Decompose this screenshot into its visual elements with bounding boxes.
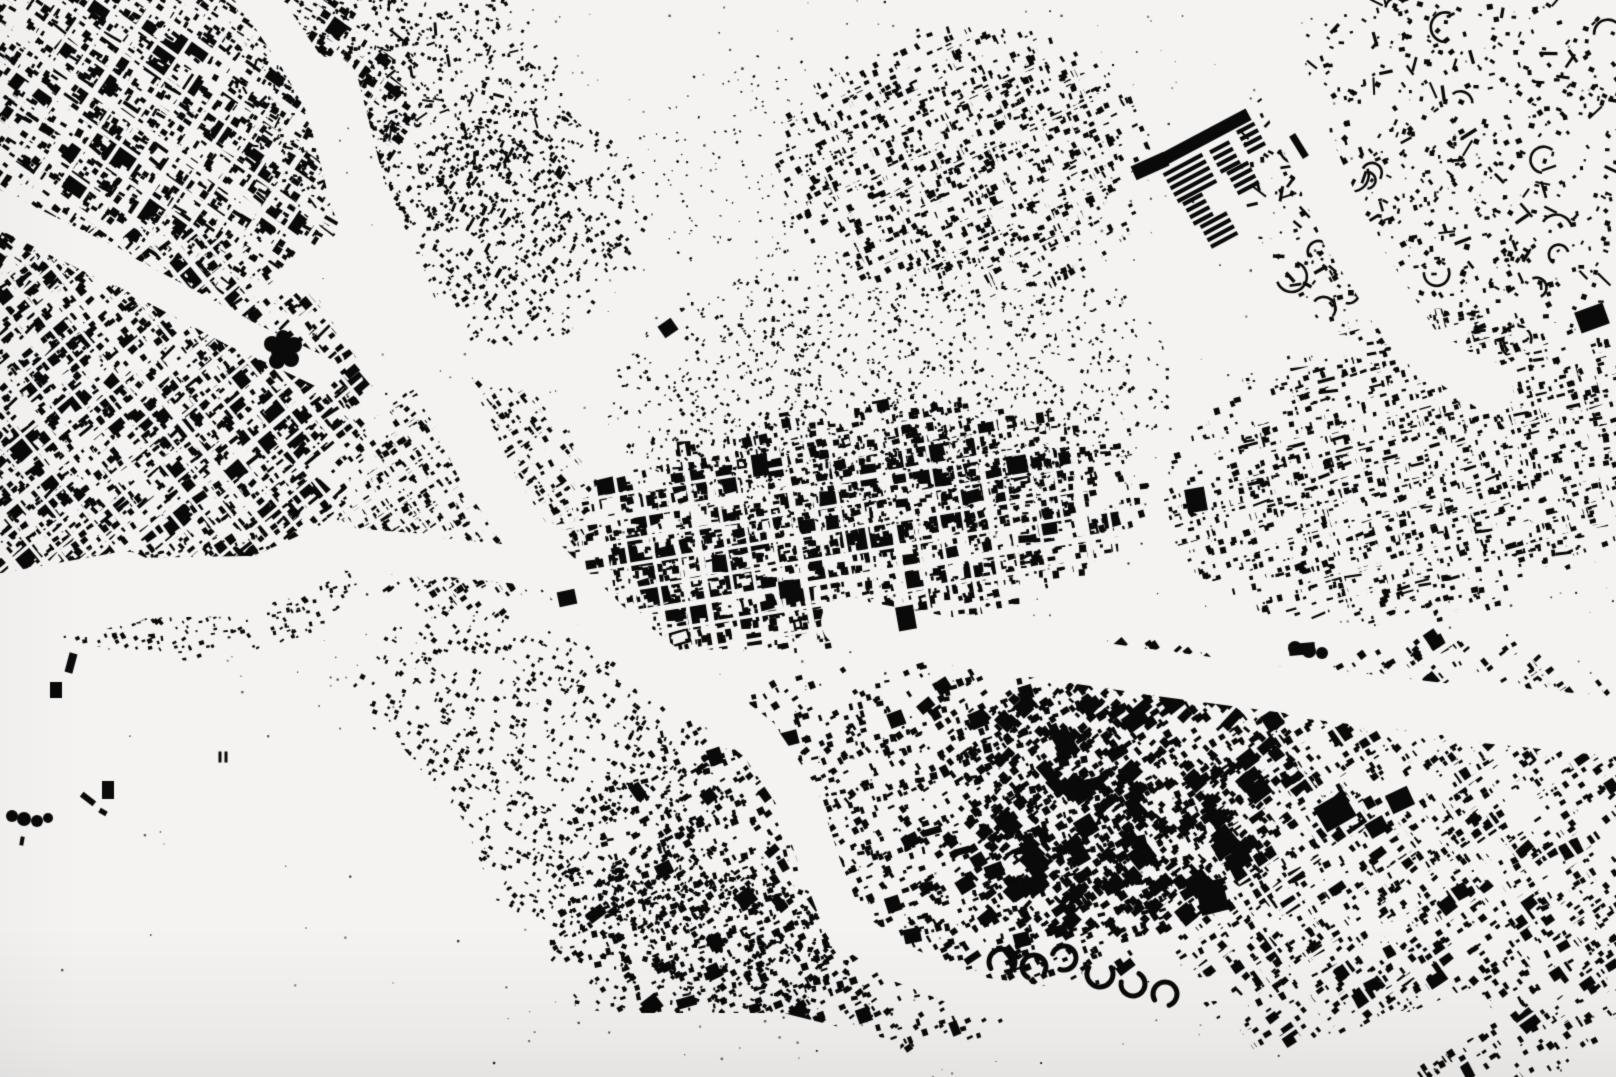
figure-ground-map (0, 0, 1616, 1077)
map-viewport (0, 0, 1616, 1077)
